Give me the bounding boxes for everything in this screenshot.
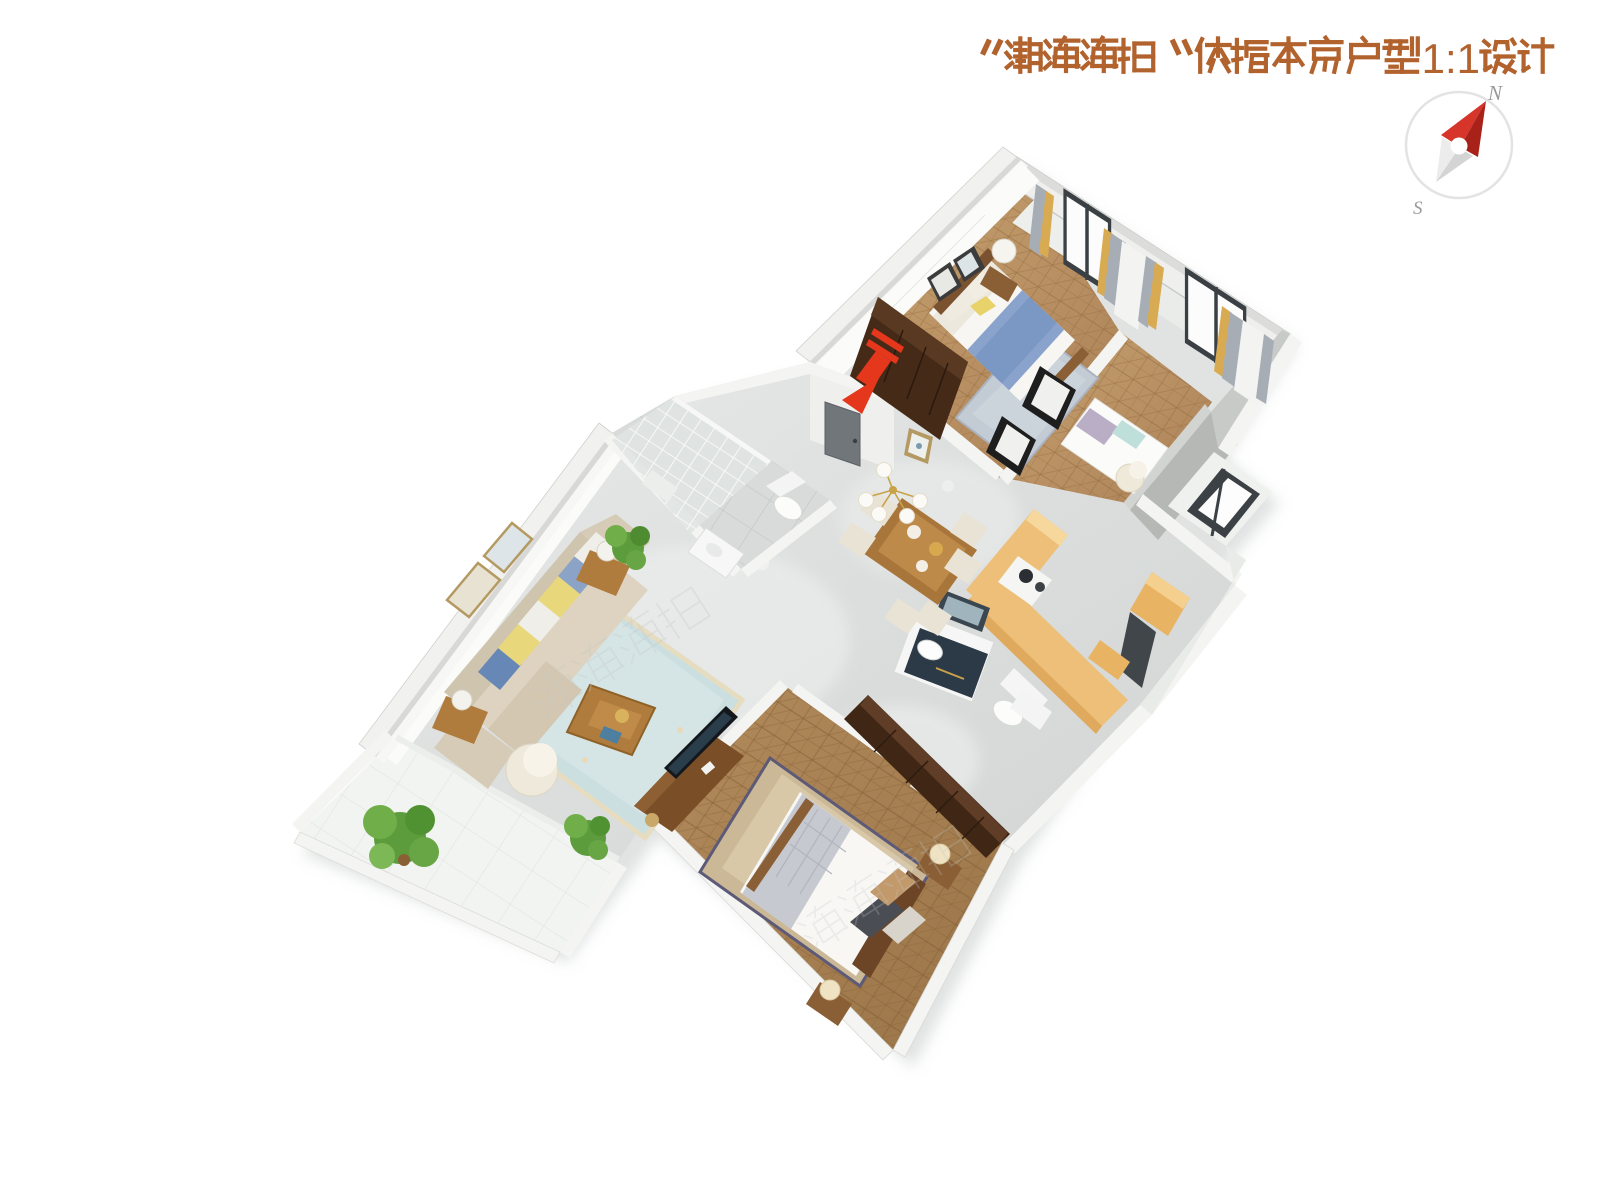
svg-text:1:1: 1:1 bbox=[1422, 35, 1480, 82]
svg-text:S: S bbox=[1413, 198, 1423, 219]
svg-text:N: N bbox=[1487, 81, 1503, 105]
